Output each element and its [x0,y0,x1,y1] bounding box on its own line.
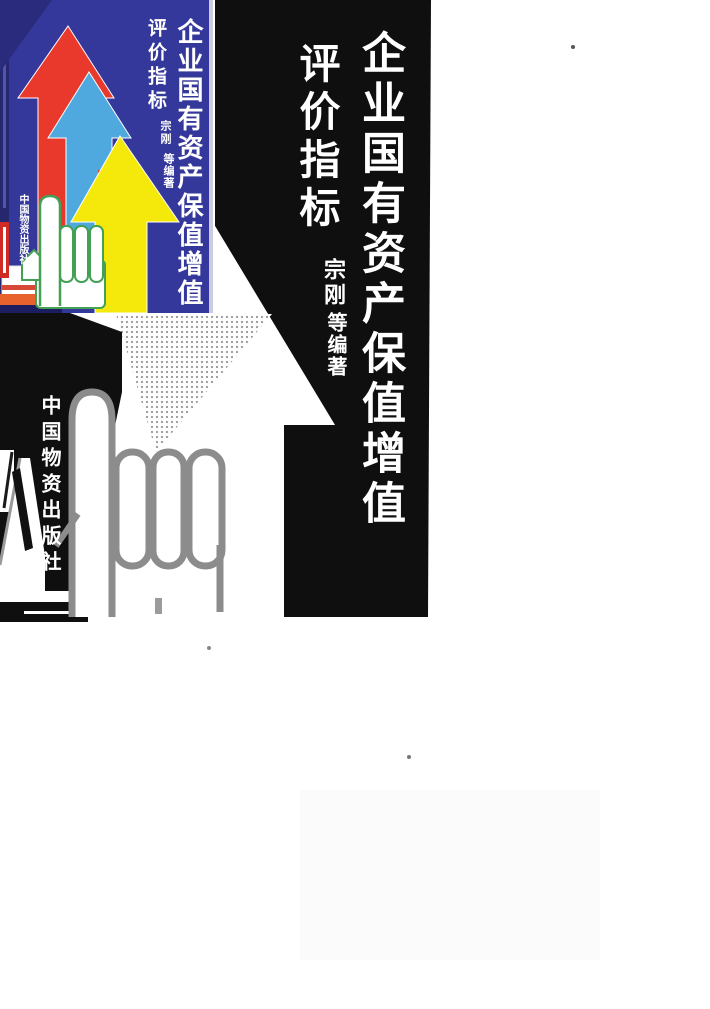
scan-faint-band [300,790,600,960]
scan-speck [207,646,211,650]
publisher-name: 中国物资出版社 [39,395,59,577]
index-finger [40,196,60,306]
book-author: 宗刚 [322,258,344,308]
color-cover-thumbnail: 企业国有资产保值增值 评价指标 宗刚 等编著 中国物资出版社 [0,0,213,313]
book-subtitle-vertical: 评价指标 [295,42,336,234]
thumb-book-subtitle: 评价指标 [146,18,165,114]
thumb-book-title: 企业国有资产保值增值 [176,18,202,308]
thumb-publisher: 中国物资出版社 [17,194,27,264]
scan-speck [407,755,411,759]
thumb-book-author: 宗刚 [159,120,170,146]
scanned-book-cover-page: 企业国有资产保值增值 评价指标 宗刚 等编著 中国物资出版社 [0,0,710,1009]
curled-finger-2 [75,226,88,282]
thumb-right-light-edge [209,0,213,313]
thumb-left-streak [3,58,6,208]
sign-post-white-line [3,227,6,273]
curled-finger-3 [90,226,103,282]
curled-finger-2 [153,452,184,566]
thumb-author-role: 等编著 [162,153,173,189]
scan-stub [155,598,162,614]
curled-finger-1 [60,226,73,282]
book-author-role: 等编著 [325,312,345,378]
book-title-vertical: 企业国有资产保值增值 [357,30,401,530]
curled-finger-1 [116,452,149,566]
index-finger [72,392,112,617]
scan-speck [571,45,575,49]
